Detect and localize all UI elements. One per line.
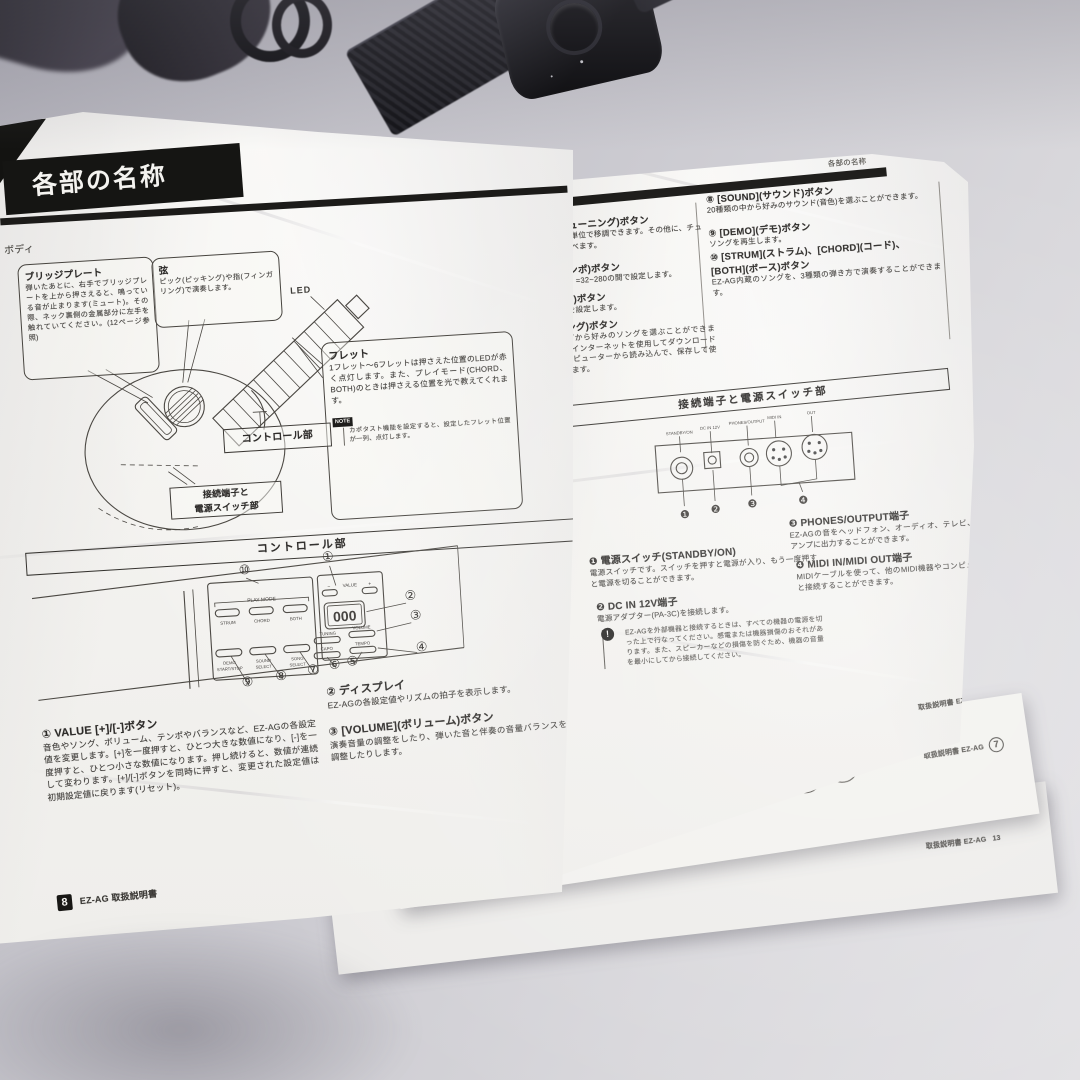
photo-scene: 取扱説明書 EZ-AG 13 取扱説明書 EZ-AG 7 2 各部の名称	[0, 0, 1080, 1080]
svg-text:PHONES/OUTPUT: PHONES/OUTPUT	[729, 418, 766, 426]
bridge-callout: ブリッジプレート 弾いたあとに、右手でブリッジプレートを上から押さえると、鳴って…	[17, 256, 160, 380]
svg-text:STANDBY/ON: STANDBY/ON	[666, 429, 693, 436]
svg-text:SONG: SONG	[291, 656, 304, 662]
svg-text:❶: ❶	[680, 509, 691, 522]
svg-text:SELECT: SELECT	[255, 664, 272, 670]
warning-icon: !	[601, 627, 615, 641]
led-label: LED	[290, 284, 312, 295]
svg-text:MIDI IN: MIDI IN	[767, 414, 782, 420]
sheet2-footer: 取扱説明書 EZ-AG 13	[925, 833, 1001, 851]
note-row: NOTE カポタスト機能を設定すると、設定したフレット位置が一列、点灯します。	[332, 399, 512, 446]
svg-text:VOLUME: VOLUME	[352, 624, 371, 630]
svg-text:TEMPO: TEMPO	[355, 640, 371, 646]
speck	[551, 75, 553, 77]
panel-callout-8: ⑧	[275, 669, 287, 683]
svg-text:CAPO: CAPO	[321, 646, 334, 652]
panel-callout-6: ⑥	[328, 657, 340, 671]
panel-callout-3: ③	[409, 608, 421, 622]
buckle-hole	[541, 0, 608, 61]
svg-text:TUNING: TUNING	[319, 631, 336, 637]
svg-text:❸: ❸	[747, 498, 758, 511]
svg-text:−: −	[327, 584, 330, 590]
manual-item: ❶ 電源スイッチ(STANDBY/ON) 電源スイッチです。スイッチを押すと電源…	[588, 537, 818, 590]
string-callout: 弦 ピック(ピッキング)や指(フィンガリング)で演奏します。	[151, 250, 283, 328]
warning-note: ! EZ-AGを外部機器と接続するときは、すべての機器の電源を切った上で行なって…	[602, 615, 825, 670]
svg-text:SELECT: SELECT	[289, 661, 306, 667]
manual-item: ③ [VOLUME](ボリューム)ボタン 演奏音量の調整をしたり、弾いた音と伴奏…	[328, 702, 569, 764]
panel-callout-9: ⑨	[241, 675, 253, 689]
panel-callout-5: ⑤	[346, 654, 358, 668]
svg-text:❷: ❷	[710, 504, 721, 517]
svg-text:CHORD: CHORD	[254, 618, 270, 624]
svg-text:OUT: OUT	[807, 410, 817, 416]
note-tag-icon: NOTE	[332, 417, 353, 427]
svg-text:VALUE: VALUE	[342, 582, 357, 588]
panel-callout-2: ②	[404, 588, 416, 602]
panel-callout-4: ④	[415, 640, 427, 654]
svg-text:SOUND: SOUND	[256, 658, 271, 664]
strap-assembly	[368, 0, 707, 142]
svg-text:DEMO: DEMO	[223, 660, 237, 666]
page-left-content: 各部の名称 ボディ	[0, 91, 609, 940]
svg-text:DC IN 12V: DC IN 12V	[700, 424, 721, 430]
panel-callout-10: ⑩	[238, 563, 250, 577]
svg-text:+: +	[368, 581, 371, 587]
page-left: 各部の名称 ボディ	[0, 106, 573, 944]
fret-callout: フレット 1フレット〜6フレットは押さえた位置のLEDが赤く点灯します。また、プ…	[321, 331, 524, 521]
strap-buckle	[490, 0, 667, 103]
svg-text:❹: ❹	[798, 495, 809, 508]
left-page-footer: 8 EZ-AG 取扱説明書	[56, 886, 157, 912]
speck	[580, 60, 584, 64]
panel-callout-7: ⑦	[307, 663, 319, 677]
panel-callout-1: ①	[322, 550, 334, 564]
svg-text:000: 000	[333, 607, 358, 624]
svg-text:BOTH: BOTH	[290, 616, 302, 622]
svg-text:STRUM: STRUM	[220, 620, 236, 626]
left-page-number: 8	[56, 894, 72, 911]
right-corner-section-title: 各部の名称	[827, 156, 866, 170]
